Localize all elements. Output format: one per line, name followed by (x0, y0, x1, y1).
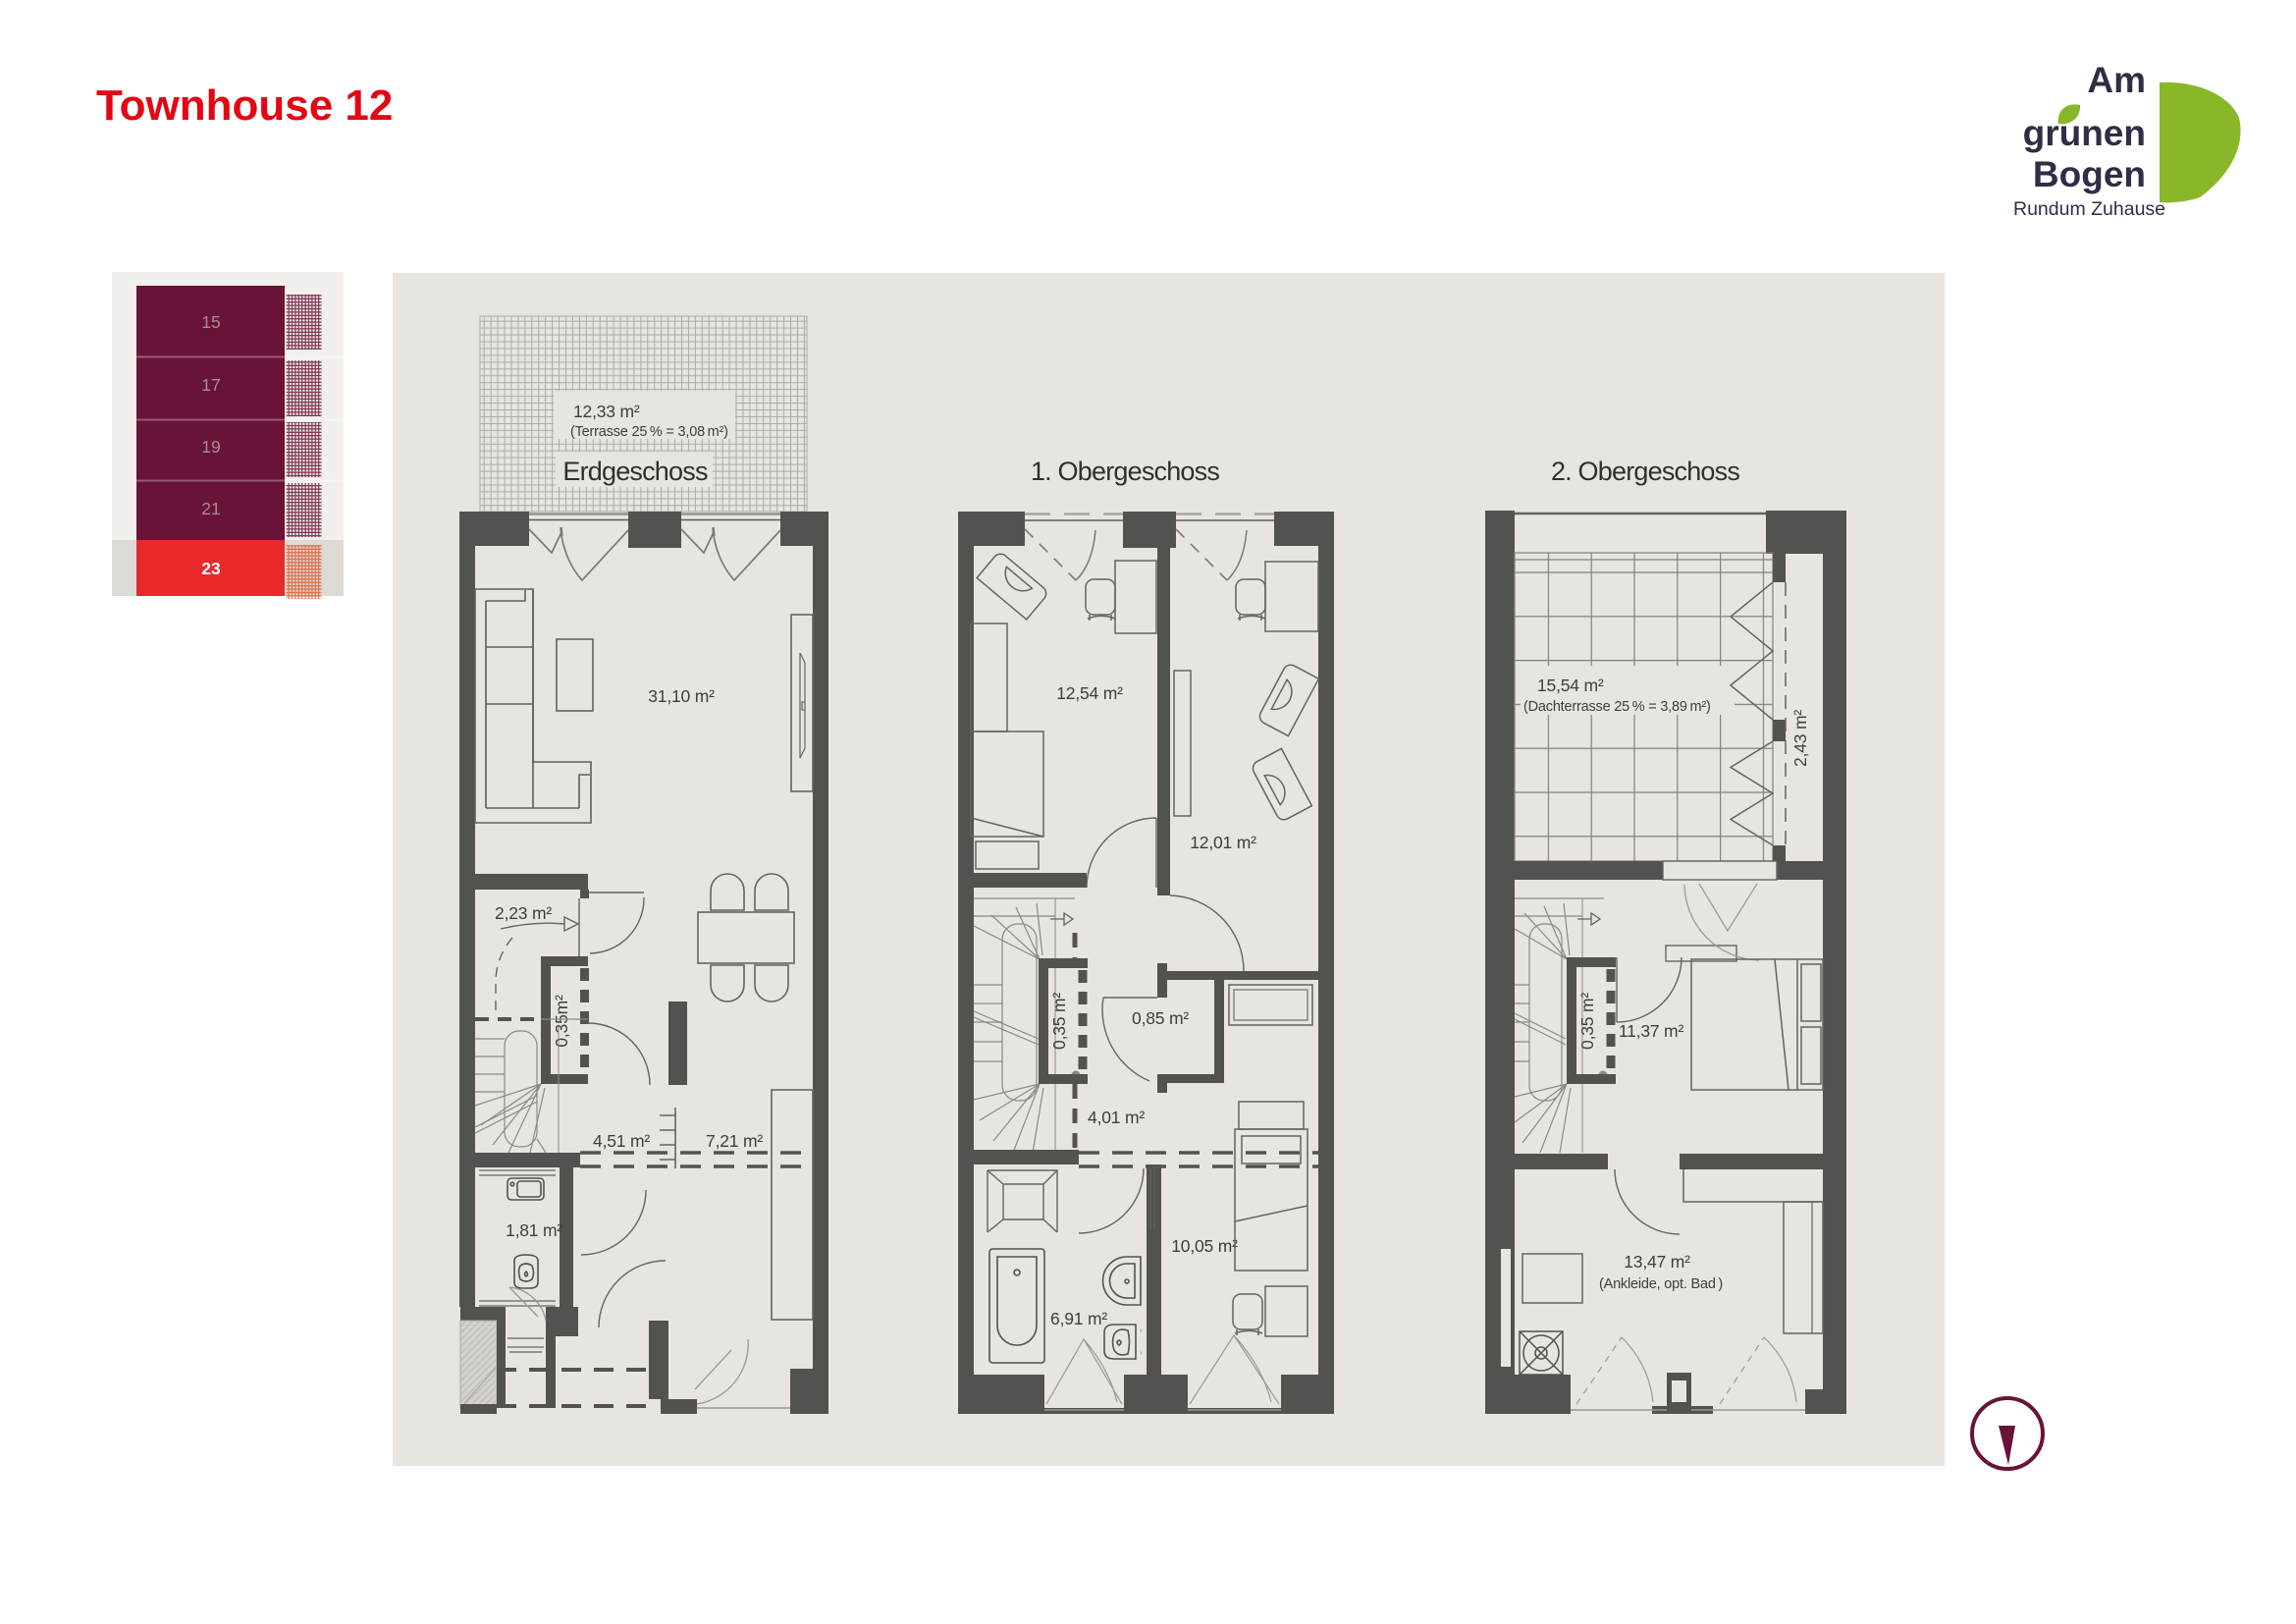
svg-text:10,05 m²: 10,05 m² (1171, 1236, 1238, 1256)
svg-text:2. Obergeschoss: 2. Obergeschoss (1551, 457, 1739, 486)
svg-text:4,01 m²: 4,01 m² (1088, 1108, 1145, 1127)
svg-text:Am: Am (2087, 60, 2146, 100)
svg-text:19: 19 (201, 437, 220, 457)
svg-text:6,91 m²: 6,91 m² (1050, 1309, 1107, 1328)
svg-text:11,37 m²: 11,37 m² (1619, 1021, 1684, 1041)
svg-text:2,43 m²: 2,43 m² (1790, 710, 1810, 767)
svg-text:1,81 m²: 1,81 m² (506, 1220, 562, 1240)
svg-text:Rundum Zuhause: Rundum Zuhause (2013, 198, 2165, 220)
svg-text:12,01 m²: 12,01 m² (1190, 833, 1256, 852)
svg-text:(Dachterrasse 25 % = 3,89 m²): (Dachterrasse 25 % = 3,89 m²) (1523, 699, 1711, 715)
svg-text:31,10 m²: 31,10 m² (648, 686, 715, 706)
svg-text:21: 21 (201, 499, 220, 518)
svg-text:0,35 m²: 0,35 m² (1049, 993, 1069, 1050)
svg-text:15: 15 (201, 312, 220, 332)
svg-text:(Terrasse 25 % = 3,08 m²): (Terrasse 25 % = 3,08 m²) (570, 424, 728, 440)
svg-text:Townhouse 12: Townhouse 12 (96, 81, 393, 130)
svg-text:17: 17 (201, 375, 220, 395)
svg-text:Bogen: Bogen (2033, 154, 2146, 194)
svg-text:Erdgeschoss: Erdgeschoss (562, 457, 708, 486)
svg-text:0,35 m²: 0,35 m² (1577, 993, 1597, 1050)
svg-text:grunen: grunen (2023, 113, 2146, 153)
svg-text:0,85 m²: 0,85 m² (1132, 1008, 1189, 1028)
svg-text:2,23 m²: 2,23 m² (495, 903, 552, 923)
svg-text:(Ankleide, opt. Bad ): (Ankleide, opt. Bad ) (1599, 1276, 1723, 1292)
svg-text:12,33 m²: 12,33 m² (573, 402, 640, 421)
svg-text:4,51 m²: 4,51 m² (593, 1131, 650, 1151)
svg-text:15,54 m²: 15,54 m² (1537, 676, 1604, 695)
svg-text:7,21 m²: 7,21 m² (706, 1131, 763, 1151)
svg-text:23: 23 (201, 559, 221, 578)
svg-text:1. Obergeschoss: 1. Obergeschoss (1031, 457, 1219, 486)
svg-text:13,47 m²: 13,47 m² (1624, 1252, 1690, 1272)
svg-text:0,35m²: 0,35m² (552, 995, 571, 1048)
svg-text:12,54 m²: 12,54 m² (1056, 683, 1123, 703)
